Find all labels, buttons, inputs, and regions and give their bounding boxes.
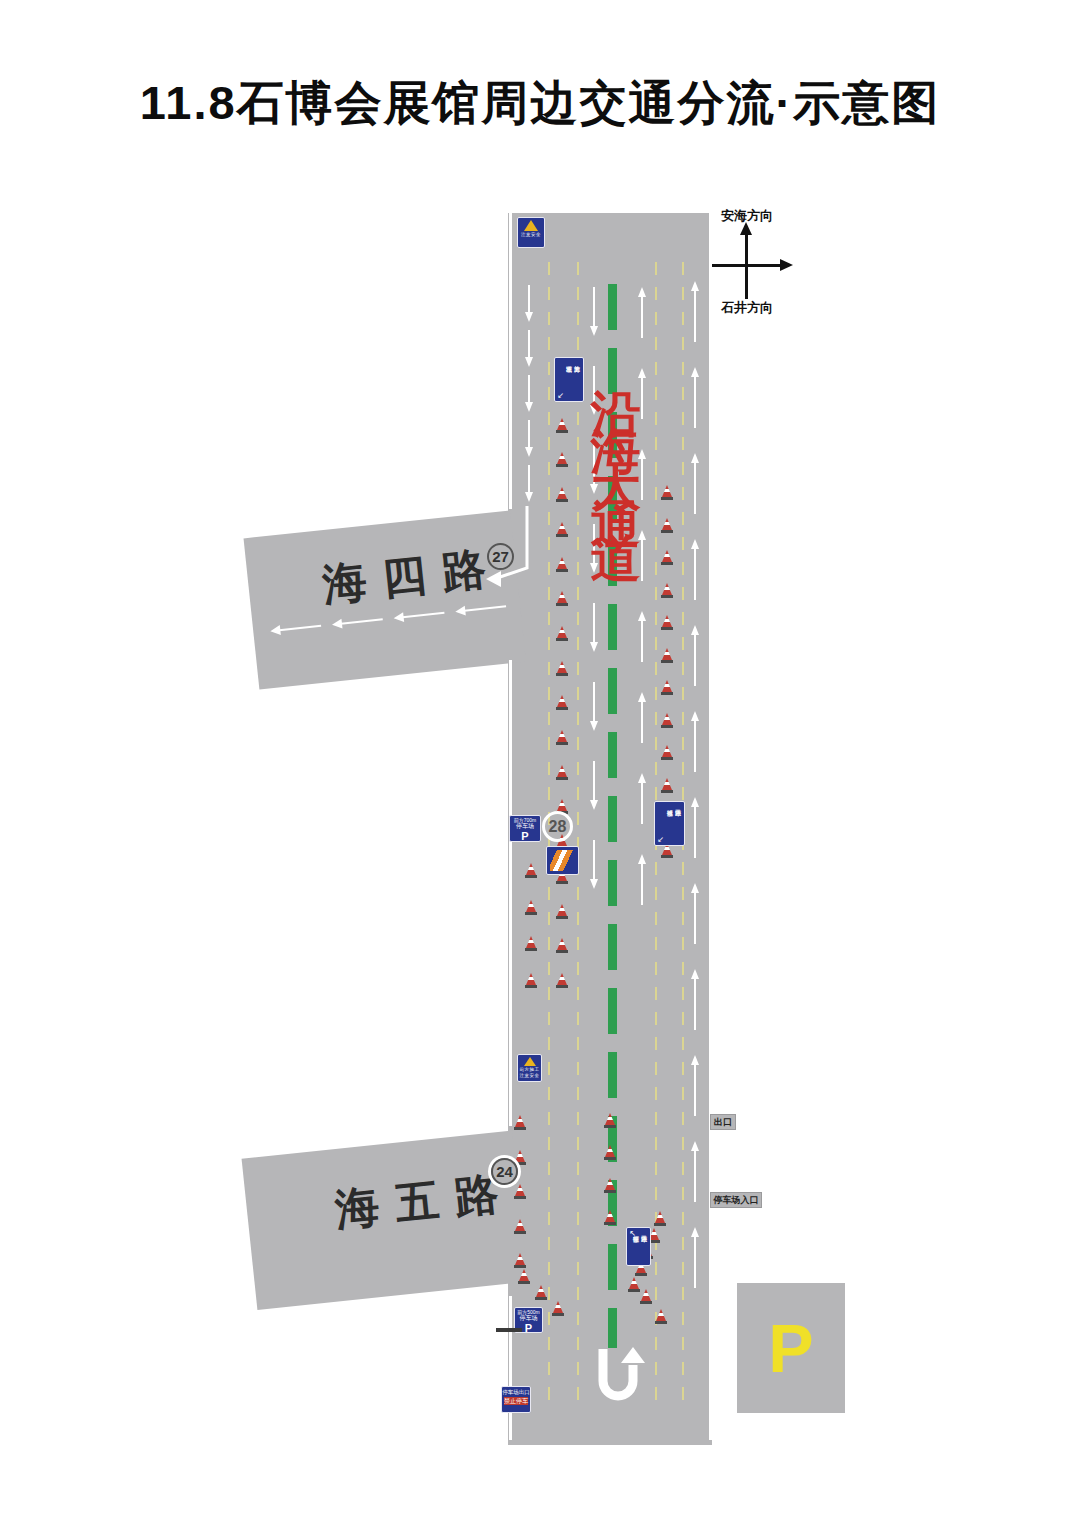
warning-triangle-icon [524, 1057, 536, 1066]
lane-arrow-down [528, 420, 530, 448]
traffic-cone [661, 648, 673, 663]
traffic-cone [556, 452, 568, 467]
lane-closed-sign-left: 前方施工 车辆改道 ↙ [554, 357, 584, 402]
parking-entrance-tab: 停车场入口 [710, 1192, 762, 1208]
lane-arrow-down [593, 761, 595, 801]
lane-divider-dashed [577, 262, 579, 1405]
lane-arrow-up [694, 806, 696, 858]
main-road-name: 沿海大通道 [585, 350, 647, 530]
sign-text-col: 车辆改道 [565, 361, 573, 398]
lane-arrow-up [694, 376, 696, 428]
traffic-cone [628, 1277, 640, 1292]
traffic-cone [604, 1145, 616, 1160]
traffic-cone [552, 1301, 564, 1316]
lane-arrow-up [694, 548, 696, 600]
road-edge-line [709, 213, 712, 1440]
lane-arrow-up [641, 620, 643, 662]
lane-arrow-up [694, 1150, 696, 1202]
lane-arrow-down [593, 524, 595, 564]
traffic-cone [514, 1184, 526, 1199]
parking-entrance-sign-low: 停车场入口 车辆慢行 ↖ [626, 1227, 651, 1266]
traffic-cone [556, 730, 568, 745]
parking-p-icon: P [510, 830, 540, 842]
lane-arrow-down [528, 285, 530, 313]
parking-700m-sign: 前方700m 停车场 P [509, 815, 541, 842]
diagonal-arrow-icon: ↖ [628, 1229, 636, 1238]
traffic-cone [514, 1219, 526, 1234]
traffic-cone [655, 1309, 667, 1324]
lane-arrow-down [593, 603, 595, 643]
parking-exit-no-stopping-sign: 停车场出口 禁止停车 [501, 1386, 531, 1413]
construction-warning-sign-mid: 前方施工 注意安全 [517, 1054, 542, 1082]
sign-text-line: 停车场出口 [502, 1387, 530, 1396]
traffic-cone [518, 1269, 530, 1284]
traffic-cone [556, 557, 568, 572]
parking-lot: P [737, 1283, 845, 1413]
sign-text-col: 停车场入口 [640, 1231, 648, 1262]
traffic-cone [604, 1178, 616, 1193]
sign-text-col: 减速慢行 [666, 805, 674, 842]
traffic-cone [661, 778, 673, 793]
lane-arrow-down [593, 682, 595, 722]
traffic-cone [556, 904, 568, 919]
warning-triangle-icon [524, 220, 538, 231]
traffic-cone [556, 695, 568, 710]
lane-arrow-up [694, 462, 696, 514]
lane-arrow-up [694, 892, 696, 944]
traffic-cone [556, 973, 568, 988]
traffic-cone [535, 1285, 547, 1300]
traffic-cone [525, 973, 537, 988]
traffic-cone [514, 1150, 526, 1165]
sign-parking-text: 停车场 [510, 823, 540, 830]
parking-lot-p-label: P [768, 1309, 813, 1387]
lane-arrow-up [694, 1236, 696, 1288]
traffic-cone [556, 626, 568, 641]
lane-arrow-down [528, 375, 530, 403]
lane-arrow-up [641, 863, 643, 905]
traffic-cone [525, 936, 537, 951]
lane-arrow-down [528, 330, 530, 358]
barrier-mark [496, 1328, 522, 1332]
traffic-cone [661, 518, 673, 533]
traffic-cone [661, 713, 673, 728]
lane-arrow-up [641, 539, 643, 581]
lane-arrow-up [694, 720, 696, 772]
traffic-cone [640, 1289, 652, 1304]
diagonal-arrow-icon: ↙ [556, 391, 564, 400]
parking-entrance-sign-right: 停车场入口 减速慢行 ↙ [654, 801, 685, 846]
traffic-cone [556, 418, 568, 433]
road-edge-line [509, 660, 512, 1126]
turn-guide-line [478, 498, 542, 590]
traffic-cone [514, 1253, 526, 1268]
traffic-cone [556, 522, 568, 537]
lane-arrow-up [641, 296, 643, 338]
diagonal-arrow-icon: ↙ [656, 835, 664, 844]
road-number-badge-24: 24 [491, 1158, 518, 1185]
traffic-cone [604, 1113, 616, 1128]
no-parking-text: 禁止停车 [504, 1397, 528, 1405]
lane-arrow-down [528, 465, 530, 493]
u-turn-icon [588, 1343, 648, 1407]
road-edge-line [509, 213, 512, 509]
lane-arrow-up [694, 290, 696, 342]
traffic-cone [525, 900, 537, 915]
traffic-diagram-page: 11.8石博会展馆周边交通分流·示意图 安海方向 石井方向 海四路 海五路 沿海… [0, 0, 1080, 1528]
traffic-cone [525, 863, 537, 878]
lane-arrow-up [641, 701, 643, 743]
lane-arrow-up [641, 782, 643, 824]
traffic-cone [661, 615, 673, 630]
traffic-cone [661, 583, 673, 598]
traffic-cone [556, 591, 568, 606]
traffic-cone [661, 680, 673, 695]
lane-arrow-up [694, 1064, 696, 1116]
lane-arrow-down [593, 287, 595, 327]
traffic-cone [514, 1115, 526, 1130]
traffic-cone [556, 938, 568, 953]
diversion-stripes-icon [550, 850, 575, 871]
construction-warning-sign-top: 注意安全 [517, 217, 545, 248]
road-number-badge-27: 27 [487, 543, 514, 570]
traffic-cone [661, 485, 673, 500]
warning-sign-text: 注意安全 [518, 232, 544, 238]
lane-arrow-down [593, 840, 595, 880]
traffic-cone [604, 1210, 616, 1225]
road-number-badge-28: 28 [542, 811, 573, 842]
sign-text-col: 停车场入口 [674, 805, 682, 842]
traffic-cone [556, 487, 568, 502]
road-edge-line [509, 1296, 512, 1440]
sign-parking-text: 停车场 [515, 1315, 542, 1322]
sign-text-col: 前方施工 [573, 361, 581, 398]
traffic-cone [654, 1211, 666, 1226]
diversion-graphic-sign [546, 846, 579, 875]
traffic-cone [556, 661, 568, 676]
warning-sign-text: 前方施工 [518, 1067, 541, 1073]
exit-tab: 出口 [710, 1114, 736, 1130]
traffic-cone [661, 745, 673, 760]
lane-arrow-up [694, 978, 696, 1030]
traffic-cone [661, 550, 673, 565]
lane-arrow-up [694, 634, 696, 686]
warning-sign-text: 注意安全 [518, 1073, 541, 1079]
traffic-cone [556, 765, 568, 780]
